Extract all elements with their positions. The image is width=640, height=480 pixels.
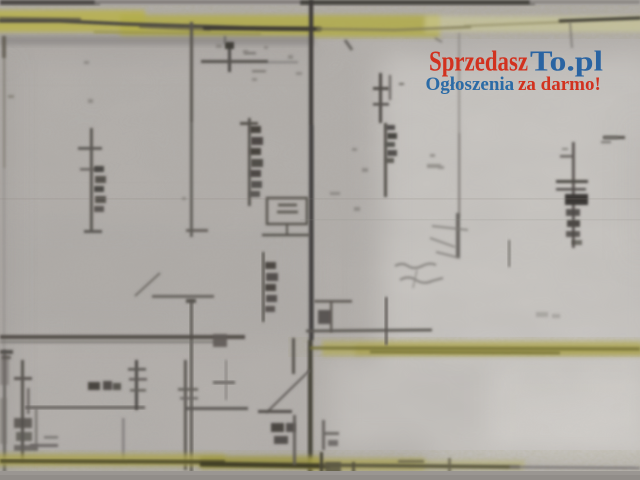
svg-text:za darmo!: za darmo! — [518, 74, 601, 95]
svg-text:To.pl: To.pl — [530, 47, 603, 78]
svg-text:Ogłoszenia: Ogłoszenia — [426, 74, 515, 95]
svg-text:Sprzedasz: Sprzedasz — [429, 47, 528, 78]
